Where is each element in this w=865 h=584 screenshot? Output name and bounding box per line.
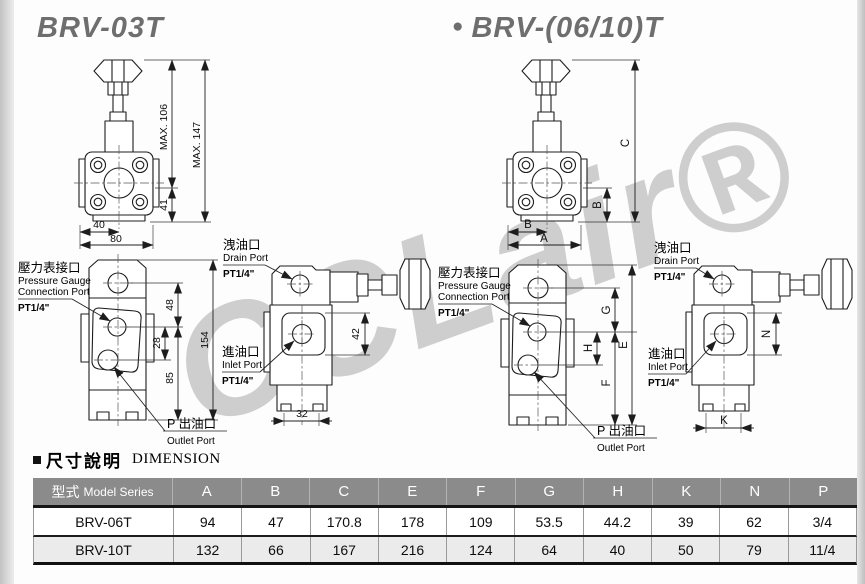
table-cell: 11/4: [788, 537, 856, 562]
dim-max-upper: MAX. 106: [158, 104, 170, 150]
table-header-cell: G: [515, 478, 584, 505]
drain-port-label-en: Drain Port: [654, 256, 699, 267]
table-header-row: 型式 Model Series A B C E F G H K N P: [33, 478, 857, 508]
table-cell: 62: [719, 508, 787, 535]
table-cell-model: BRV-10T: [34, 537, 173, 562]
pressure-gauge-port-size: PT1/4": [18, 303, 50, 314]
table-cell-model: BRV-06T: [34, 508, 173, 535]
table-cell: 124: [446, 537, 514, 562]
table-cell: 109: [446, 508, 514, 535]
table-cell: 167: [310, 537, 378, 562]
dim-c: C: [620, 139, 632, 147]
title-text: BRV-(06/10)T: [471, 12, 662, 45]
pressure-gauge-port-label-en2: Connection Port: [18, 287, 90, 298]
table-cell: 64: [514, 537, 582, 562]
header-model-en: Model Series: [83, 485, 153, 499]
table-row: BRV-06T 94 47 170.8 178 109 53.5 44.2 39…: [33, 508, 857, 537]
drawing-brv0610t-side-view: N K 洩油口 Drain Port PT1/4" 進油口 Inlet Port…: [640, 228, 865, 448]
pressure-gauge-port-label-zh: 壓力表接口: [18, 260, 81, 275]
inlet-port-size: PT1/4": [222, 376, 254, 387]
drawing-brv03t-front-view: 48 28 85 154 壓力表接口 Pressure Gauge Connec…: [15, 250, 237, 460]
valve-outline: [81, 260, 154, 420]
dim-half-width: 40: [93, 219, 105, 231]
table-cell: 66: [241, 537, 309, 562]
dim-full-width: 80: [110, 233, 122, 245]
valve-outline: [264, 259, 430, 411]
inlet-port-size: PT1/4": [648, 378, 680, 389]
dim-k: K: [720, 415, 728, 427]
table-cell: 44.2: [583, 508, 651, 535]
page-edge-left: [0, 0, 14, 584]
table-cell: 39: [651, 508, 719, 535]
outlet-port-label-zh: P 出油口: [597, 424, 646, 438]
dim-b-side: B: [592, 201, 604, 209]
dim-e: E: [618, 341, 630, 349]
square-bullet-icon: [33, 456, 41, 464]
catalog-page: CCLair® BRV-03T ● BRV-(06/10)T: [0, 0, 865, 584]
bullet-icon: ●: [452, 16, 464, 38]
drain-port-label-zh: 洩油口: [223, 238, 261, 252]
inlet-port-label-en: Inlet Port: [222, 360, 262, 371]
table-header-cell: A: [172, 478, 241, 505]
pressure-gauge-port-label-en1: Pressure Gauge: [438, 281, 511, 292]
pressure-gauge-port-label-en1: Pressure Gauge: [18, 276, 91, 287]
title-brv-06-10t: ● BRV-(06/10)T: [452, 12, 663, 45]
inlet-port-label-zh: 進油口: [222, 345, 260, 359]
dim-body-height: 41: [158, 199, 170, 211]
dim-max-total: MAX. 147: [191, 122, 203, 168]
dim-n: N: [761, 330, 773, 338]
drawing-brv0610t-top-view: C B B A: [488, 55, 665, 255]
table-header-cell: B: [241, 478, 310, 505]
pressure-gauge-port-label-zh: 壓力表接口: [438, 265, 501, 280]
dim-inlet-height: 42: [350, 328, 362, 340]
table-cell: 47: [241, 508, 309, 535]
dim-foot-width: 32: [296, 408, 308, 420]
table-cell: 79: [719, 537, 787, 562]
table-cell: 170.8: [310, 508, 378, 535]
header-model-zh: 型式: [51, 482, 79, 502]
table-cell: 53.5: [514, 508, 582, 535]
table-header-model: 型式 Model Series: [33, 478, 172, 505]
drawing-brv0610t-front-view: G H F E 壓力表接口 Pressure Gauge Connection …: [435, 255, 665, 465]
dim-b-bottom: B: [524, 219, 532, 231]
valve-outline: [501, 265, 574, 425]
outlet-port-label-en: Outlet Port: [597, 443, 645, 454]
drain-port-size: PT1/4": [654, 272, 686, 283]
dim-port-spacing: 28: [151, 337, 163, 349]
drain-port-size: PT1/4": [223, 269, 255, 280]
section-heading: 尺寸說明 DIMENSION: [33, 447, 221, 472]
dim-h: H: [583, 344, 595, 352]
dimension-table: 型式 Model Series A B C E F G H K N P BRV-…: [33, 478, 857, 565]
table-header-cell: H: [583, 478, 652, 505]
table-header-cell: K: [652, 478, 721, 505]
table-header-cell: P: [789, 478, 858, 505]
drain-port-label-zh: 洩油口: [654, 241, 692, 255]
inlet-port-label-en: Inlet Port: [648, 362, 688, 373]
table-cell: 94: [173, 508, 241, 535]
table-row: BRV-10T 132 66 167 216 124 64 40 50 79 1…: [33, 537, 857, 565]
pressure-gauge-port-label-en2: Connection Port: [438, 292, 510, 303]
dim-g: G: [601, 305, 613, 314]
table-cell: 50: [651, 537, 719, 562]
section-title-en: DIMENSION: [132, 451, 221, 468]
drawing-brv03t-top-view: MAX. 106 41 MAX. 147 40 80: [60, 55, 250, 255]
title-brv-03t: BRV-03T: [37, 12, 164, 45]
dim-gauge-to-inlet: 48: [164, 299, 176, 311]
table-cell: 132: [173, 537, 241, 562]
drain-port-label-en: Drain Port: [223, 253, 268, 264]
outlet-port-label-zh: P 出油口: [167, 417, 216, 431]
dim-a: A: [540, 233, 548, 245]
dim-f: F: [601, 379, 613, 386]
table-header-cell: N: [720, 478, 789, 505]
table-cell: 3/4: [788, 508, 856, 535]
table-header-cell: E: [378, 478, 447, 505]
title-text: BRV-03T: [37, 12, 164, 45]
pressure-gauge-port-size: PT1/4": [438, 308, 470, 319]
inlet-port-label-zh: 進油口: [648, 347, 686, 361]
drawing-brv03t-side-view: 42 32 洩油口 Drain Port PT1/4" 進油口 Inlet Po…: [218, 228, 440, 446]
table-header-cell: F: [446, 478, 515, 505]
outlet-port-label-en: Outlet Port: [167, 436, 215, 447]
dim-lower-height: 85: [164, 372, 176, 384]
table-header-cell: C: [309, 478, 378, 505]
table-cell: 40: [583, 537, 651, 562]
table-cell: 216: [378, 537, 446, 562]
dim-total-height: 154: [199, 331, 211, 349]
table-cell: 178: [378, 508, 446, 535]
section-title-zh: 尺寸說明: [46, 447, 122, 472]
